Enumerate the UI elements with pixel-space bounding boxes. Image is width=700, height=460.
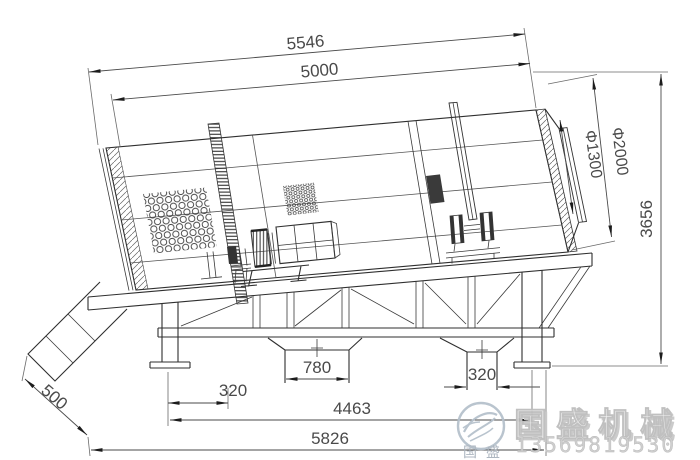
support-frame: [88, 253, 592, 390]
rotary-drum: [99, 102, 587, 304]
perforation-patch-left: [143, 188, 217, 254]
gear-reducer: [251, 229, 276, 266]
drive-motor: [276, 221, 340, 263]
dimension-chute-extension: 500: [22, 356, 87, 435]
truss-verticals: [253, 276, 475, 328]
dim-leg-span-label: 4463: [333, 399, 371, 418]
dim-overall-height-label: 3656: [637, 200, 656, 238]
dim-chute-extension-label: 500: [37, 381, 71, 414]
dim-base-length-label: 5826: [311, 429, 349, 448]
frame-end-brace: [539, 266, 590, 328]
watermark-phone: 13569819530: [515, 433, 676, 457]
machine-body: [28, 102, 592, 390]
left-leg: [150, 302, 190, 368]
engineering-drawing-page: 5546 5000 Φ1300 Φ2000 3656 500: [0, 0, 700, 460]
dimension-drum-length: 5000: [111, 59, 530, 146]
dim-drum-length-label: 5000: [300, 59, 339, 81]
perforation-patch-center: [283, 183, 319, 216]
dimension-left-base-offset: 320: [168, 372, 247, 426]
frame-bottom-chord: [158, 328, 554, 337]
inspection-patch: [426, 174, 445, 203]
trommel-screen-drawing: 5546 5000 Φ1300 Φ2000 3656 500: [0, 0, 700, 460]
dim-left-hopper-width-label: 780: [303, 358, 331, 377]
dim-top-overall-label: 5546: [286, 31, 325, 53]
dim-left-base-offset-label: 320: [219, 381, 247, 400]
dimension-top-overall: 5546: [88, 28, 536, 145]
dimension-overall-height: 3656: [533, 72, 668, 366]
dim-outlet-diameter-label: Φ1300: [581, 129, 605, 179]
ring-gear-band: [208, 123, 248, 304]
bird-swoosh-logo: [458, 403, 504, 449]
dimension-left-hopper-width: 780: [286, 358, 348, 379]
dim-drum-diameter-label: Φ2000: [608, 126, 631, 176]
watermark-company-small: 国盛: [463, 444, 509, 460]
frame-top-chord: [88, 253, 592, 310]
dim-right-hopper-width-label: 320: [468, 365, 496, 384]
watermark: 国盛 国盛机械 国盛机械 13569819530: [458, 403, 685, 460]
riding-ring-band: [449, 102, 477, 220]
discharge-chute: [28, 282, 127, 381]
